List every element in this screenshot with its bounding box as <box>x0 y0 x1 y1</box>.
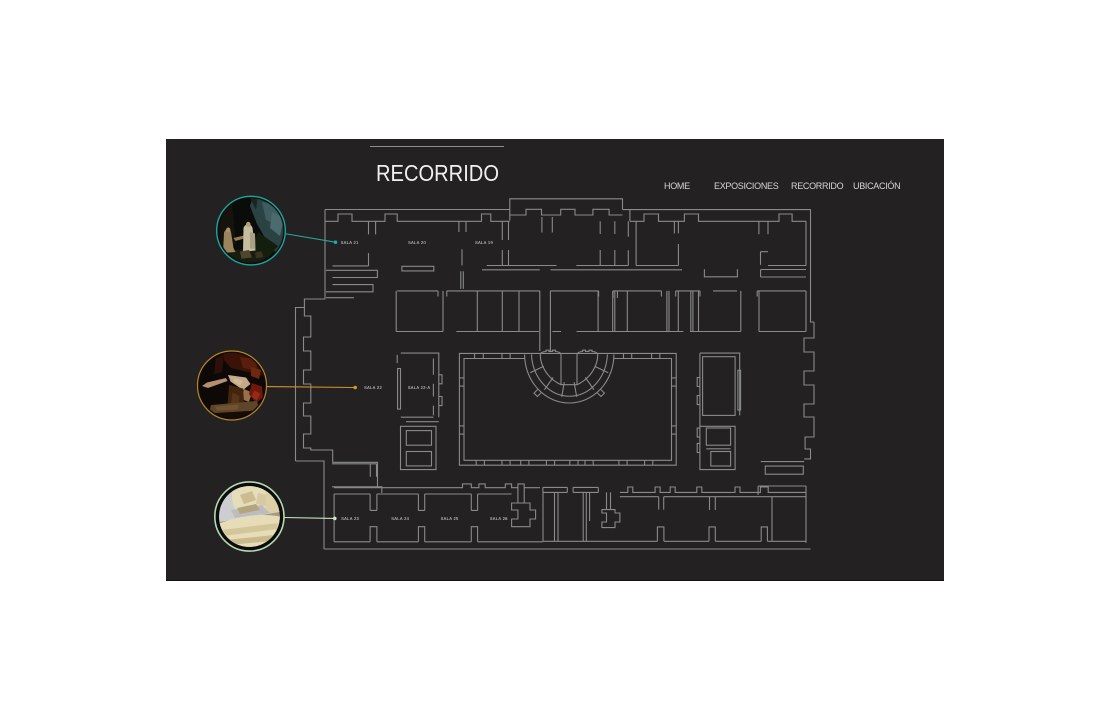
svg-text:SALA 24: SALA 24 <box>391 516 409 521</box>
svg-text:SALA 22: SALA 22 <box>364 385 382 390</box>
svg-text:SALA 20: SALA 20 <box>408 240 426 245</box>
svg-text:SALA 22-A: SALA 22-A <box>408 385 431 390</box>
svg-text:SALA 21: SALA 21 <box>341 240 359 245</box>
svg-text:SALA 23: SALA 23 <box>341 516 359 521</box>
svg-text:SALA 25: SALA 25 <box>441 516 459 521</box>
svg-text:SALA 26: SALA 26 <box>490 516 508 521</box>
svg-text:SALA 19: SALA 19 <box>475 240 493 245</box>
